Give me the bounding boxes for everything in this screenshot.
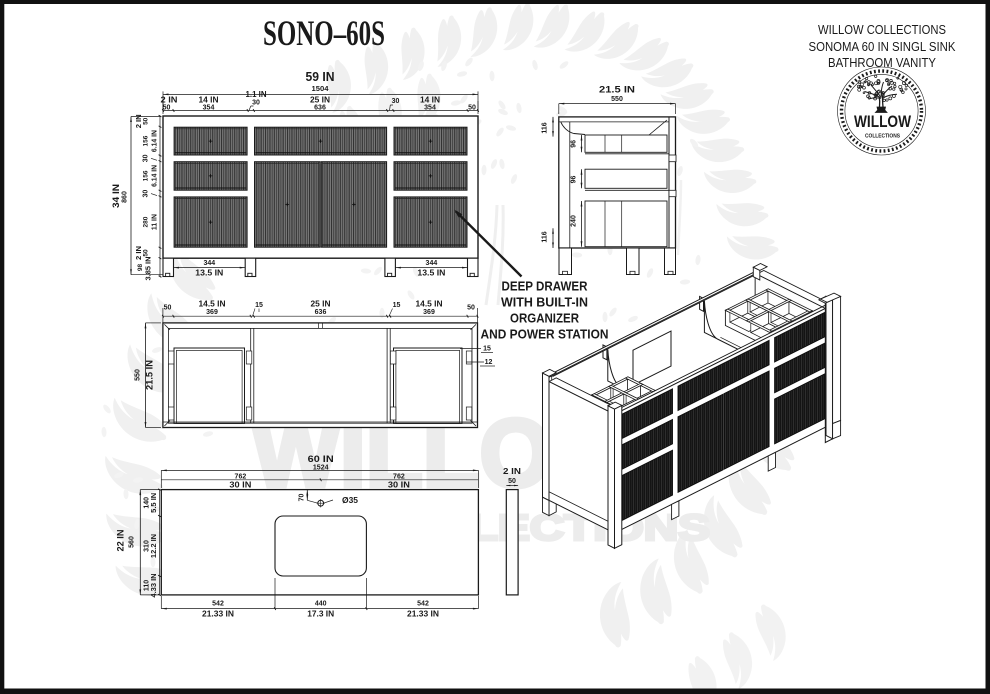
svg-text:30: 30: [143, 190, 150, 198]
svg-text:21.5 IN: 21.5 IN: [145, 360, 155, 390]
svg-text:14.5 IN: 14.5 IN: [416, 299, 443, 308]
svg-text:13.5 IN: 13.5 IN: [417, 268, 445, 278]
svg-text:280: 280: [143, 216, 150, 227]
svg-text:96: 96: [571, 140, 578, 148]
svg-text:550: 550: [135, 369, 142, 381]
svg-text:15: 15: [255, 302, 263, 309]
svg-text:5.5 IN: 5.5 IN: [149, 493, 158, 513]
svg-text:542: 542: [417, 600, 429, 607]
svg-text:344: 344: [203, 260, 215, 267]
svg-text:AND POWER STATION: AND POWER STATION: [481, 327, 609, 342]
svg-text:59 IN: 59 IN: [306, 70, 335, 84]
svg-text:96: 96: [571, 176, 578, 184]
svg-text:21.33 IN: 21.33 IN: [407, 609, 439, 619]
svg-text:13.5 IN: 13.5 IN: [195, 268, 223, 278]
svg-text:1504: 1504: [312, 84, 330, 93]
svg-text:14.5 IN: 14.5 IN: [199, 299, 226, 308]
svg-text:DEEP DRAWER: DEEP DRAWER: [502, 279, 589, 294]
svg-text:3.85 IN: 3.85 IN: [143, 257, 152, 281]
svg-text:34 IN: 34 IN: [111, 184, 122, 208]
svg-text:WILLOW: WILLOW: [854, 112, 912, 131]
svg-text:240: 240: [571, 215, 578, 227]
svg-text:30: 30: [392, 98, 400, 105]
svg-text:1.1 IN: 1.1 IN: [246, 90, 267, 99]
svg-text:21.5 IN: 21.5 IN: [599, 85, 635, 96]
svg-text:17.3 IN: 17.3 IN: [307, 609, 334, 619]
svg-text:30: 30: [143, 154, 150, 162]
svg-text:6.14 IN: 6.14 IN: [150, 165, 159, 187]
svg-text:21.33 IN: 21.33 IN: [202, 609, 234, 619]
svg-text:369: 369: [423, 309, 435, 316]
svg-text:WITH BUILT-IN: WITH BUILT-IN: [501, 295, 588, 310]
svg-text:50: 50: [142, 117, 149, 125]
svg-text:BATHROOM VANITY: BATHROOM VANITY: [828, 55, 936, 70]
svg-text:60 IN: 60 IN: [308, 454, 334, 465]
svg-text:2 IN: 2 IN: [503, 466, 521, 476]
svg-text:636: 636: [315, 309, 327, 316]
svg-text:25 IN: 25 IN: [310, 95, 330, 104]
svg-text:4.33 IN: 4.33 IN: [149, 573, 158, 597]
svg-text:11 IN: 11 IN: [150, 214, 159, 230]
svg-text:12.2 IN: 12.2 IN: [149, 534, 158, 558]
svg-text:25 IN: 25 IN: [311, 299, 331, 308]
svg-text:344: 344: [426, 260, 438, 267]
svg-text:860: 860: [122, 191, 129, 203]
svg-text:354: 354: [424, 105, 436, 112]
svg-text:12: 12: [485, 359, 493, 366]
svg-text:156: 156: [143, 135, 150, 146]
svg-text:116: 116: [542, 231, 549, 242]
svg-text:50: 50: [467, 305, 475, 312]
svg-text:369: 369: [206, 309, 218, 316]
svg-text:30 IN: 30 IN: [388, 480, 410, 490]
svg-text:50: 50: [164, 305, 172, 312]
svg-text:156: 156: [143, 170, 150, 181]
svg-text:50: 50: [142, 249, 149, 257]
svg-text:Ø35: Ø35: [342, 496, 359, 505]
svg-text:542: 542: [212, 600, 224, 607]
svg-text:354: 354: [203, 105, 215, 112]
svg-text:ORGANIZER: ORGANIZER: [510, 311, 580, 326]
svg-text:22 IN: 22 IN: [116, 530, 126, 552]
svg-text:6.14 IN: 6.14 IN: [150, 130, 159, 152]
svg-text:70: 70: [299, 494, 306, 502]
svg-text:50: 50: [163, 105, 171, 112]
svg-text:30 IN: 30 IN: [229, 480, 251, 490]
svg-text:560: 560: [129, 536, 136, 548]
svg-text:440: 440: [315, 600, 327, 607]
svg-text:SONOMA 60 IN SINGL SINK: SONOMA 60 IN SINGL SINK: [809, 39, 956, 54]
svg-text:WILLOW COLLECTIONS: WILLOW COLLECTIONS: [818, 22, 946, 37]
svg-text:550: 550: [611, 96, 623, 103]
svg-text:30: 30: [252, 100, 260, 107]
svg-text:15: 15: [393, 302, 401, 309]
svg-text:50: 50: [468, 105, 476, 112]
svg-text:50: 50: [508, 478, 516, 485]
svg-text:14 IN: 14 IN: [420, 95, 440, 104]
svg-text:14 IN: 14 IN: [199, 95, 219, 104]
svg-text:COLLECTIONS: COLLECTIONS: [865, 134, 900, 140]
svg-text:636: 636: [314, 105, 326, 112]
svg-text:116: 116: [542, 122, 549, 133]
svg-text:SONO–60S: SONO–60S: [263, 13, 385, 53]
svg-text:15: 15: [483, 346, 491, 353]
svg-text:2 IN: 2 IN: [161, 95, 178, 104]
